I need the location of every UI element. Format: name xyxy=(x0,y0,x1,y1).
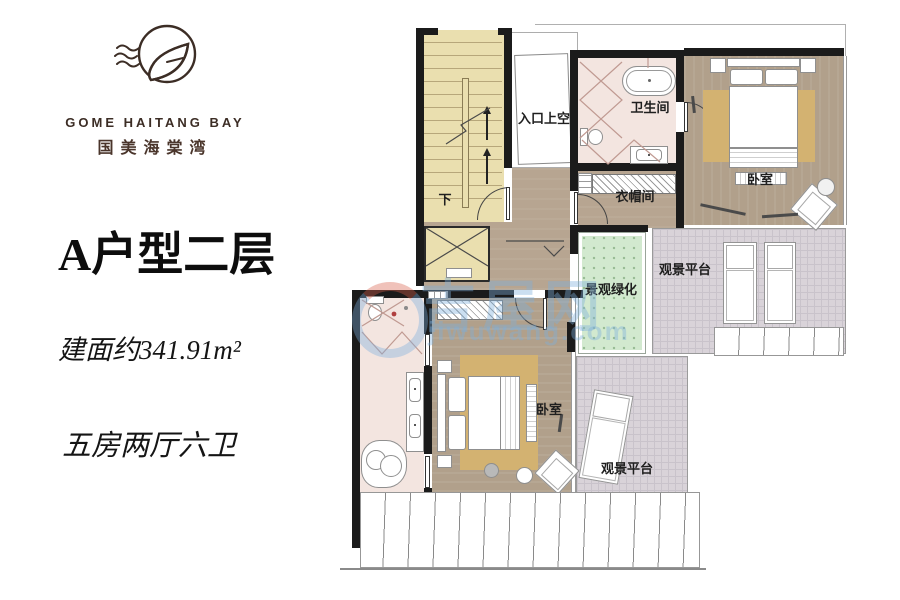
bed-pillow xyxy=(730,69,763,85)
door-leaf-bathroom-bottom-2 xyxy=(425,456,430,488)
label-deck-bottom: 观景平台 xyxy=(600,462,654,476)
toilet-tank-bottom xyxy=(366,296,384,304)
deck-railing-bottom xyxy=(360,492,700,568)
label-wardrobe: 衣帽间 xyxy=(609,190,661,204)
stair-arrow-down-head xyxy=(483,148,491,156)
unit-area: 建面约341.91m² xyxy=(58,328,241,367)
wall xyxy=(504,32,512,168)
nightstand-right xyxy=(800,58,816,73)
roof-edge-line-right xyxy=(845,24,846,57)
brand-logo: GOME HAITANG BAY 国美海棠湾 xyxy=(55,18,255,158)
roof-edge-line-top xyxy=(535,24,845,25)
nightstand xyxy=(437,360,452,373)
stair-arrow-up-line xyxy=(486,114,488,140)
brand-name-cn: 国美海棠湾 xyxy=(55,134,255,158)
wardrobe-bottom-bedroom xyxy=(437,300,503,320)
wall xyxy=(684,48,844,56)
label-entry-void: 入口上空 xyxy=(508,112,580,126)
label-bedroom-bottom: 卧室 xyxy=(529,403,569,417)
label-deck-top: 观景平台 xyxy=(658,263,712,277)
wall xyxy=(416,28,424,224)
door-leaf-bathroom-bottom xyxy=(425,334,430,366)
deck-railing-top xyxy=(714,327,844,356)
brand-name-en: GOME HAITANG BAY xyxy=(55,115,255,130)
sink-faucet-dot xyxy=(648,154,650,156)
bed-headboard-bottom xyxy=(437,374,446,452)
stair-arrow-down-line xyxy=(486,156,488,184)
wall-cabinet xyxy=(428,291,448,299)
nightstand xyxy=(437,455,452,468)
bed-pillow xyxy=(448,377,466,412)
bed-foot-throw xyxy=(500,376,520,450)
bedroom-top-window xyxy=(843,56,847,225)
stair-arrow-up-head xyxy=(483,106,491,114)
bed-body-top xyxy=(729,86,798,148)
door-leaf-wardrobe xyxy=(574,192,578,224)
elevator-car xyxy=(446,268,472,278)
unit-rooms: 五房两厅六卫 xyxy=(62,422,236,464)
door-leaf-bedroom-top xyxy=(684,102,688,132)
stool-white xyxy=(516,467,533,484)
wall xyxy=(570,232,578,254)
stool-gray xyxy=(484,463,499,478)
basin-dot xyxy=(414,424,416,426)
brand-logo-icon xyxy=(55,18,255,110)
wall xyxy=(676,171,684,228)
wall xyxy=(570,52,578,168)
wall xyxy=(570,225,648,232)
plan-bottom-line xyxy=(340,568,706,570)
wall xyxy=(545,290,583,298)
vanity-basin xyxy=(409,378,421,402)
wall xyxy=(424,298,432,334)
label-green: 景观绿化 xyxy=(584,283,638,297)
wall xyxy=(570,163,578,191)
wall xyxy=(676,58,684,102)
label-stairs-down: 下 xyxy=(438,193,452,207)
wall xyxy=(416,28,438,35)
shoe-cabinet xyxy=(578,173,592,194)
nightstand-left xyxy=(710,58,726,73)
wall xyxy=(567,322,575,352)
door-leaf-stairs xyxy=(506,187,510,220)
bed-pillow xyxy=(448,415,466,450)
stair-rail xyxy=(462,78,469,208)
bed-pillow xyxy=(765,69,798,85)
wall xyxy=(416,224,424,286)
bed-foot-throw xyxy=(729,148,798,168)
wall xyxy=(424,366,432,454)
door-leaf-bedroom-bottom xyxy=(543,298,547,330)
corridor-floor xyxy=(512,168,570,290)
side-table xyxy=(817,178,835,196)
bed-headboard-top xyxy=(727,58,800,67)
floorplan-page: GOME HAITANG BAY 国美海棠湾 A户型二层 建面约341.91m²… xyxy=(0,0,900,600)
label-bathroom: 卫生间 xyxy=(624,101,676,115)
deck-lounger xyxy=(764,242,796,324)
wall xyxy=(352,290,432,298)
toilet-tank-top xyxy=(580,128,588,146)
vanity-basin xyxy=(409,414,421,438)
bathtub-drain xyxy=(648,79,651,82)
deck-lounger xyxy=(723,242,757,324)
wall xyxy=(570,163,684,171)
wall xyxy=(352,290,360,548)
label-bedroom-top: 卧室 xyxy=(740,173,780,187)
wall xyxy=(570,50,684,58)
toilet-bowl-top xyxy=(588,129,603,145)
unit-title: A户型二层 xyxy=(58,218,275,284)
basin-dot xyxy=(414,388,416,390)
jacuzzi-inner xyxy=(380,455,402,477)
entry-void-opening-outline xyxy=(514,53,572,165)
toilet-bowl-bottom xyxy=(368,304,382,321)
